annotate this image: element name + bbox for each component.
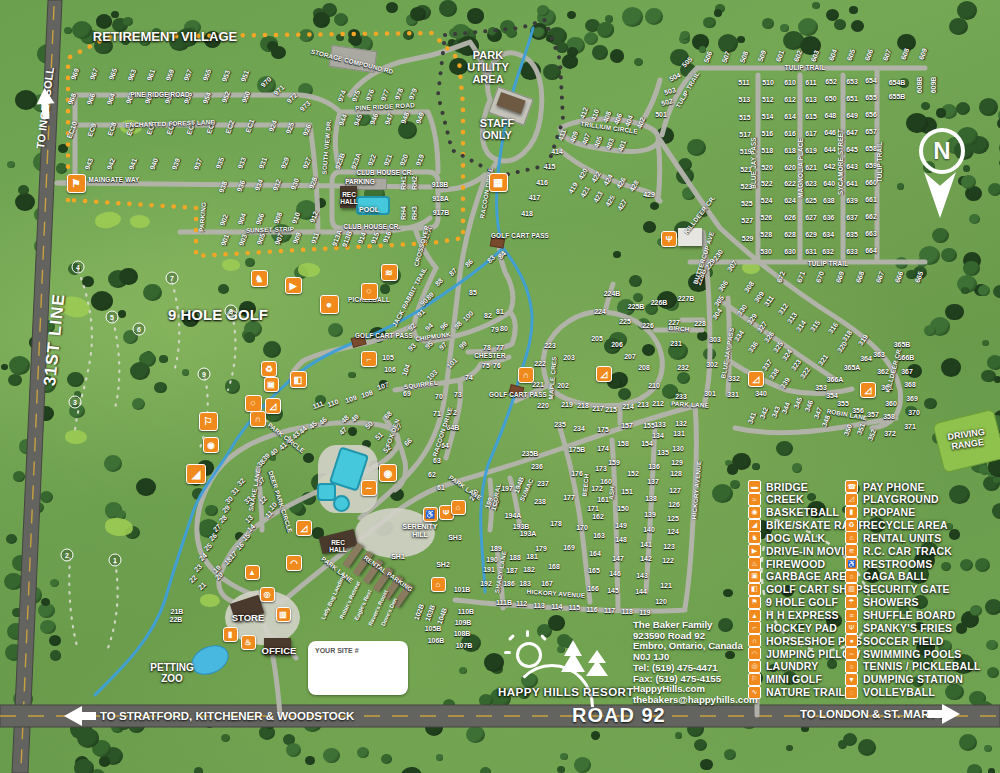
site-63: 63 (433, 457, 441, 464)
golf-cart-shop-icon: ◧ (290, 371, 307, 388)
gaga-ball-icon: ○ (845, 570, 858, 583)
site-668: 668 (855, 270, 866, 283)
restroom-icon: ♿ (423, 507, 438, 522)
site-653: 653 (846, 78, 858, 85)
road-label-chester: CHESTER (474, 353, 506, 359)
site-416: 416 (536, 178, 548, 185)
site-409: 409 (569, 130, 580, 143)
site-134: 134 (652, 432, 664, 439)
site-119: 119 (639, 609, 650, 616)
site-937: 937 (193, 157, 204, 170)
spankys-fries-icon: Ψ (661, 231, 677, 247)
site-643: 643 (846, 163, 858, 170)
security-gate-icon: ▥ (845, 583, 858, 596)
site-82: 82 (484, 312, 492, 319)
site-325: 325 (772, 340, 784, 354)
site-182: 182 (523, 566, 535, 573)
left-arrow-stem (80, 712, 96, 720)
site-235: 235 (554, 421, 566, 428)
site-rh2: RH2 (411, 176, 418, 190)
road-label-magnolia-place: MAGNOLIA PLACE (798, 138, 804, 198)
site-68: 68 (383, 410, 393, 420)
legend-label: GAGA BALL (863, 570, 927, 582)
site-410: 410 (590, 108, 601, 121)
legend-label: BASKETBALL (766, 506, 839, 518)
site-75: 75 (482, 362, 490, 369)
site-152: 152 (627, 470, 639, 477)
site-74: 74 (465, 374, 473, 381)
site-21: 21 (197, 581, 207, 591)
site-222: 222 (534, 360, 546, 367)
legend-item-garbage-area: ▣GARBAGE AREA (748, 570, 854, 583)
site-425: 425 (604, 194, 616, 208)
site-235b: 235B (522, 450, 539, 457)
site-223: 223 (544, 342, 556, 349)
site-238: 238 (534, 498, 546, 505)
site-608: 608 (900, 48, 911, 61)
site-424: 424 (602, 173, 614, 187)
legend-label: PLAYGROUND (863, 493, 939, 505)
site-133: 133 (654, 421, 666, 428)
playground-icon-2: ◿ (296, 520, 312, 536)
site-924: 924 (268, 119, 279, 132)
site-340: 340 (755, 390, 767, 397)
site-175: 175 (597, 426, 609, 433)
site-420: 420 (577, 167, 589, 181)
site-628: 628 (784, 231, 796, 238)
playground-icon-3: ◿ (596, 366, 612, 382)
site-212: 212 (652, 400, 664, 407)
pay-phone-icon: ☎ (845, 480, 858, 493)
site-171: 171 (587, 505, 599, 512)
site-109b: 109B (455, 619, 472, 626)
site-917b: 917B (433, 209, 450, 216)
site-933: 933 (236, 157, 247, 170)
site-932: 932 (272, 178, 283, 191)
site-405: 405 (593, 135, 604, 148)
road-label-pine-ridge-road: PINE RIDGE ROAD (355, 102, 415, 111)
site-912: 912 (309, 210, 320, 223)
site-47: 47 (338, 426, 348, 436)
site-977: 977 (379, 88, 390, 101)
site-339: 339 (779, 376, 791, 390)
site-159: 159 (608, 459, 620, 466)
site-348: 348 (821, 414, 832, 427)
soccer-field-icon: ● (845, 634, 858, 647)
site-352: 352 (867, 428, 878, 441)
site-617: 617 (805, 129, 817, 136)
legend-item-basketball: ◉BASKETBALL (748, 506, 839, 519)
site-191: 191 (483, 566, 495, 573)
site-902: 902 (219, 213, 230, 226)
site-355: 355 (837, 400, 849, 407)
road-label-crossover: CROSSOVER (414, 225, 431, 267)
site-412: 412 (579, 106, 590, 119)
legend-item-creek: ≈CREEK (748, 493, 804, 506)
site-920: 920 (399, 153, 410, 166)
site-61: 61 (437, 484, 445, 491)
site-207: 207 (624, 353, 636, 360)
site-969: 969 (70, 67, 81, 80)
site-338: 338 (768, 367, 780, 381)
road-label-killdeer-cr: KILLDEER CR. (683, 195, 717, 236)
site-237: 237 (537, 480, 549, 487)
legend-label: RESTROOMS (863, 558, 932, 570)
site-635: 635 (846, 231, 858, 238)
site-124: 124 (667, 528, 679, 535)
site-611: 611 (805, 79, 816, 86)
area-label-petting-zoo: PETTINGZOO (150, 663, 193, 685)
site-234: 234 (573, 425, 585, 432)
golf-hole-1: 1 (109, 554, 122, 567)
site-91: 91 (416, 308, 426, 318)
hockey-pad-icon: ⌐ (361, 351, 377, 367)
site-326: 326 (763, 330, 775, 344)
area-label-staff-only: STAFFONLY (480, 118, 515, 142)
basketball-icon: ◉ (203, 437, 219, 453)
swimming-pools-icon: ∼ (845, 647, 858, 660)
road-92-label: ROAD 92 (572, 704, 666, 727)
legend-item-propane: ▮PROPANE (845, 506, 916, 519)
area-label-office: OFFICE (262, 646, 297, 656)
road-label-chipmunk: CHIPMUNK (415, 331, 451, 342)
drive-in-movie-icon: ▶ (285, 277, 302, 294)
compass-n: N (919, 128, 965, 174)
site-165: 165 (588, 567, 600, 574)
site-966: 966 (86, 92, 97, 105)
site-183: 183 (519, 580, 531, 587)
road-label-snake-lane: SNAKE LANE (248, 468, 262, 511)
site-121: 121 (660, 582, 672, 589)
road-label-maingate-way: MAINGATE WAY (88, 177, 139, 183)
site-158: 158 (617, 440, 629, 447)
road-label-maple-cres: MAPLE CRES (548, 356, 558, 400)
site-50: 50 (364, 420, 374, 430)
legend-item-firewood: ♨FIREWOOD (748, 557, 825, 570)
site-505: 505 (680, 55, 693, 68)
site-652: 652 (825, 78, 837, 85)
site-657: 657 (865, 128, 877, 135)
site-193b: 193B (513, 523, 530, 530)
road-label-parking: PARKING (199, 202, 208, 232)
road-label-coral: CORAL (492, 483, 502, 507)
site-142: 142 (640, 555, 652, 562)
site-350: 350 (843, 423, 854, 436)
mini-golf-icon: ⚐ (199, 412, 218, 431)
road-label-sycamore-street: SYCAMORE STREET (838, 129, 844, 195)
golf-cart-icon: ▦ (489, 173, 508, 192)
site-108b: 108B (454, 630, 471, 637)
site-160: 160 (600, 478, 612, 485)
your-site-box[interactable]: YOUR SITE # (308, 641, 408, 695)
site-954: 954 (202, 91, 213, 104)
site-976: 976 (365, 88, 376, 101)
site-407: 407 (581, 133, 592, 146)
site-947: 947 (384, 112, 395, 125)
road-label-golf-cart-pass: GOLF CART PASS (491, 233, 549, 239)
legend-label: PAY PHONE (863, 481, 925, 493)
site-644: 644 (824, 146, 836, 153)
site-78: 78 (483, 344, 491, 351)
site-132: 132 (675, 420, 687, 427)
site-330: 330 (736, 303, 748, 317)
site-319: 319 (857, 333, 869, 347)
site-106b: 106B (428, 637, 445, 644)
site-903: 903 (238, 233, 249, 246)
site-311: 311 (763, 294, 775, 307)
site-953: 953 (221, 69, 232, 82)
site-46: 46 (318, 416, 328, 426)
site-624: 624 (784, 197, 796, 204)
drive-in-movie-icon: ▶ (748, 544, 761, 557)
site-641: 641 (846, 180, 858, 187)
area-label-9-hole-golf: 9 HOLE GOLF (168, 307, 268, 323)
site-322: 322 (799, 366, 811, 380)
site-620: 620 (784, 163, 796, 170)
site-345: 345 (793, 396, 804, 409)
site-919: 919 (415, 153, 426, 166)
site-939: 939 (171, 157, 182, 170)
pine-tree-icon (586, 660, 608, 676)
site-342: 342 (759, 406, 770, 419)
site-51: 51 (374, 431, 384, 441)
site-918b: 918B (432, 181, 449, 188)
basketball-court-icon: ◉ (379, 464, 397, 482)
site-162: 162 (592, 513, 604, 520)
road-label-south-view-dr: SOUTH VIEW DR. (321, 119, 332, 175)
site-362: 362 (877, 368, 889, 375)
site-665: 665 (914, 270, 925, 283)
legend-item-bridge: ▬BRIDGE (748, 480, 808, 493)
area-label-park-utility-area: PARKUTILITYAREA (467, 50, 509, 86)
site-955: 955 (202, 69, 213, 82)
site-630: 630 (784, 248, 796, 255)
site-401: 401 (617, 139, 628, 152)
site-949: 949 (415, 111, 426, 124)
legend-item-recycle-area: ♻RECYCLE AREA (845, 519, 948, 532)
site-313: 313 (786, 311, 798, 325)
site-219: 219 (561, 401, 573, 408)
site-414: 414 (551, 148, 563, 155)
site-307: 307 (726, 259, 738, 273)
road-label-golf-cart-pass: GOLF CART PASS (489, 392, 547, 398)
site-901: 901 (220, 233, 231, 246)
legend-label: FIREWOOD (766, 558, 825, 570)
site-190: 190 (486, 556, 498, 563)
legend-item-restrooms: ♿RESTROOMS (845, 557, 932, 570)
site-656: 656 (865, 111, 877, 118)
site-951: 951 (240, 69, 251, 82)
site-151: 151 (621, 488, 633, 495)
site-914: 914 (357, 231, 368, 244)
site-169: 169 (563, 544, 575, 551)
site-341: 341 (747, 411, 758, 424)
site-225b: 225B (628, 303, 645, 310)
site-113: 113 (534, 601, 545, 608)
site-93: 93 (407, 342, 417, 352)
site-608b: 608B (916, 77, 923, 94)
site-92: 92 (407, 322, 417, 332)
site-331: 331 (727, 391, 739, 398)
rental-info-icon: ⌂ (451, 500, 466, 515)
site-86: 86 (464, 258, 474, 268)
site-206: 206 (611, 341, 623, 348)
site-950: 950 (240, 90, 251, 103)
site-316: 316 (827, 321, 839, 335)
site-366a: 366A (827, 376, 844, 383)
site-179: 179 (535, 545, 547, 552)
legend-label: SHUFFLE BOARD (863, 609, 955, 621)
site-167: 167 (541, 580, 553, 587)
site-948: 948 (399, 112, 410, 125)
site-408: 408 (601, 110, 612, 123)
site-324: 324 (781, 348, 793, 362)
site-99: 99 (458, 340, 468, 350)
site-670: 670 (815, 270, 826, 283)
site-946: 946 (369, 112, 380, 125)
site-971: 971 (272, 83, 285, 96)
site-126: 126 (668, 501, 680, 508)
site-181: 181 (526, 553, 538, 560)
road-label-rental-parking: RENTAL PARKING (362, 555, 413, 593)
site-232: 232 (677, 364, 689, 371)
site-218: 218 (577, 402, 589, 409)
site-23: 23 (193, 563, 203, 573)
site-305: 305 (713, 294, 725, 308)
site-963: 963 (126, 68, 137, 81)
site-419: 419 (567, 181, 579, 195)
bridge-icon: ▬ (748, 480, 761, 493)
site-315: 315 (809, 319, 821, 333)
site-650: 650 (825, 95, 837, 102)
site-927: 927 (302, 156, 313, 169)
site-321: 321 (817, 353, 829, 367)
site-143: 143 (636, 572, 648, 579)
site-639: 639 (846, 197, 858, 204)
site-515: 515 (739, 113, 751, 120)
site-661: 661 (865, 196, 877, 203)
site-28: 28 (218, 514, 228, 524)
to-london-label: TO LONDON & ST. MARY'S (800, 708, 947, 720)
site-601: 601 (774, 49, 785, 62)
site-114: 114 (551, 602, 562, 609)
site-70: 70 (435, 393, 443, 400)
site-957: 957 (183, 68, 194, 81)
site-648: 648 (825, 112, 837, 119)
site-ec1: EC1 (245, 119, 256, 134)
site-623: 623 (805, 180, 817, 187)
site-507: 507 (721, 50, 732, 63)
site-666: 666 (894, 270, 905, 283)
site-213: 213 (637, 401, 649, 408)
site-214: 214 (622, 403, 634, 410)
golf-hole-2: 2 (61, 549, 74, 562)
site-101b: 101B (454, 586, 471, 593)
site-638: 638 (823, 197, 835, 204)
site-945: 945 (353, 113, 364, 126)
site-304: 304 (711, 307, 723, 321)
site-22b: 22B (170, 616, 183, 623)
area-label-pool: POOL (359, 206, 379, 214)
site-336: 336 (747, 340, 759, 354)
site-403: 403 (605, 137, 616, 150)
site-115: 115 (569, 604, 580, 611)
site-110b: 110B (458, 608, 474, 615)
site-411: 411 (557, 128, 567, 141)
legend-item-volleyball: ◌VOLLEYBALL (845, 686, 935, 699)
bike-skate-ramp-icon: ◢ (748, 519, 761, 532)
site-501: 501 (655, 111, 667, 118)
site-148: 148 (615, 536, 627, 543)
legend-label: DUMPING STATION (863, 673, 963, 685)
site-421: 421 (579, 185, 591, 199)
site-522: 522 (761, 180, 773, 187)
to-stratford-label: TO STRATFORD, KITCHENER & WOODSTOCK (100, 710, 354, 722)
site-107: 107 (376, 381, 389, 392)
site-rh3: RH3 (411, 206, 418, 220)
site-172: 172 (591, 485, 603, 492)
site-122: 122 (662, 557, 674, 564)
site-943: 943 (84, 157, 95, 170)
site-49: 49 (350, 413, 360, 423)
rental-units-icon: ⌂ (845, 531, 858, 544)
up-arrow-stem (41, 103, 49, 119)
site-909: 909 (292, 232, 303, 245)
site-203: 203 (563, 354, 575, 361)
site-428: 428 (628, 179, 640, 193)
road-label-birch: BIRCH (668, 325, 689, 333)
legend-item-spanky-s-fries: ΨSPANKY'S FRIES (845, 621, 952, 634)
golf-hole-3: 3 (69, 396, 82, 409)
area-label-driving-range: DRIVINGRANGE (947, 428, 987, 452)
site-427: 427 (616, 198, 628, 212)
legend-item-9-hole-golf: ⚑9 HOLE GOLF (748, 596, 838, 609)
site-94: 94 (424, 322, 434, 332)
site-632: 632 (822, 248, 834, 255)
site-935: 935 (215, 157, 226, 170)
site-95: 95 (424, 340, 434, 350)
site-344: 344 (781, 401, 792, 414)
site-627: 627 (805, 214, 817, 221)
site-ec2: EC2 (225, 119, 236, 134)
legend-label: SWIMMING POOLS (863, 648, 961, 660)
site-98: 98 (453, 320, 463, 330)
site-25: 25 (203, 542, 213, 552)
site-87: 87 (448, 267, 458, 277)
site-629: 629 (805, 231, 817, 238)
site-964: 964 (105, 92, 116, 105)
laundry-icon: ◎ (260, 587, 275, 602)
playground-icon-5: ◿ (860, 382, 876, 398)
road-label-blue-jay-pass: BLUE JAY PASS (751, 137, 757, 188)
legend-label: SHOWERS (863, 596, 919, 608)
site-127: 127 (669, 487, 681, 494)
site-503: 503 (663, 86, 676, 96)
playground-icon-4: ◿ (748, 371, 764, 387)
site-369: 369 (906, 395, 918, 402)
site-351: 351 (856, 422, 867, 435)
security-gate-icon-2: ▥ (276, 607, 291, 622)
legend-item-showers: ☂SHOWERS (845, 596, 919, 609)
site-915: 915 (369, 231, 380, 244)
site-228: 228 (694, 320, 706, 327)
site-188: 188 (509, 554, 521, 561)
site-606: 606 (864, 48, 875, 61)
right-arrow-icon (942, 704, 960, 724)
golf-hole-7: 7 (166, 272, 179, 285)
site-73: 73 (454, 391, 462, 398)
golf-cart-shop-icon: ◧ (748, 583, 761, 596)
